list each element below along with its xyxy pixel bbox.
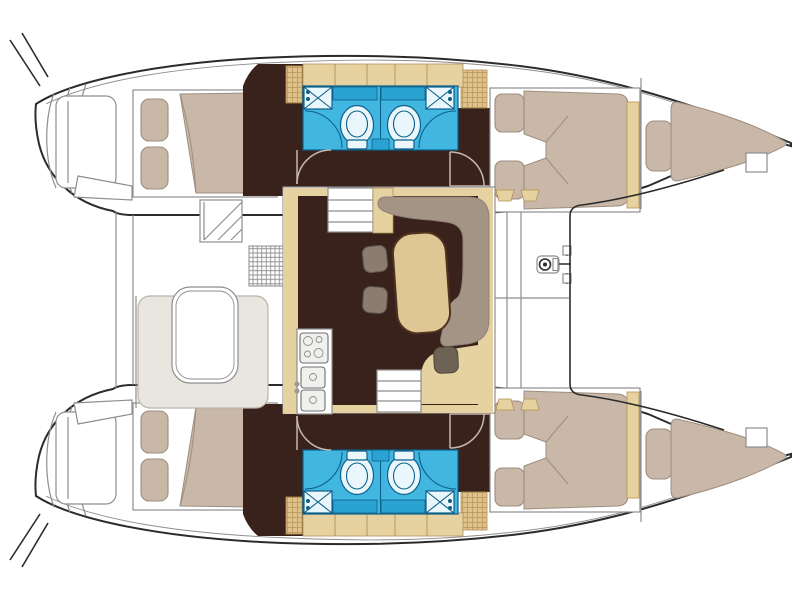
stool: [362, 286, 388, 314]
cockpit-grate-hatch: [249, 246, 283, 286]
galley-sink: [301, 390, 325, 411]
sink: [426, 87, 454, 109]
port-storage-hatch-fwd: [461, 70, 487, 108]
bow-mattress: [671, 102, 786, 181]
cockpit-bench-back-line: [133, 215, 136, 408]
salon-aft-steps: [377, 370, 421, 412]
pillow: [646, 121, 672, 171]
deck-hatch: [496, 190, 514, 201]
plumbing-wall: [372, 139, 389, 150]
port-stern-spikes: [10, 33, 48, 86]
salon-fore-steps: [328, 188, 373, 232]
port-storage-hatch-aft: [286, 66, 302, 103]
catamaran-floor-plan-svg: [0, 0, 800, 600]
pillow: [495, 94, 524, 132]
stool: [433, 346, 458, 373]
vanity-counter: [381, 87, 425, 100]
salon: [283, 187, 495, 414]
port-companionway-steps: [200, 200, 242, 242]
vanity-counter: [333, 87, 377, 100]
galley-sink: [301, 367, 325, 388]
stove: [300, 333, 328, 363]
foredeck-walkway-lines: [495, 212, 569, 388]
port-bathrooms: [303, 86, 458, 150]
pillow: [141, 99, 168, 141]
salon-table: [392, 231, 452, 334]
anchor-windlass: [537, 246, 571, 284]
anchor-locker-step: [746, 153, 767, 172]
cockpit-table: [172, 287, 238, 383]
port-cabinet-strip: [303, 64, 463, 87]
deck-hatch: [521, 190, 539, 201]
port-helm-seat: [56, 96, 116, 188]
pillow: [141, 147, 168, 189]
stool: [362, 245, 389, 273]
galley: [294, 329, 332, 414]
floor-plan: [0, 0, 800, 600]
berth-divider-shelf: [627, 102, 639, 208]
sink: [304, 87, 332, 109]
foredeck: [495, 212, 571, 388]
